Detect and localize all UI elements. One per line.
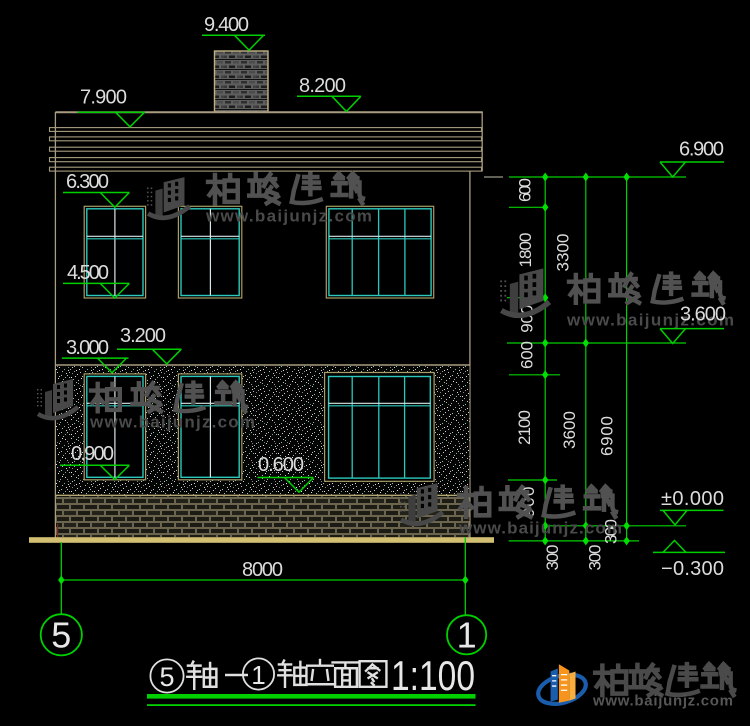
svg-text:3.200: 3.200	[120, 325, 166, 347]
svg-text:2100: 2100	[515, 410, 534, 445]
svg-text:7.900: 7.900	[80, 87, 127, 109]
svg-text:6.900: 6.900	[679, 139, 724, 161]
svg-text:0.600: 0.600	[258, 454, 304, 476]
svg-text:600: 600	[516, 178, 535, 202]
svg-text:1:100: 1:100	[391, 652, 475, 699]
svg-text:8000: 8000	[242, 559, 283, 581]
svg-text:5: 5	[159, 662, 174, 692]
svg-text:3.600: 3.600	[680, 304, 726, 326]
svg-text:3300: 3300	[554, 234, 573, 272]
svg-text:www.baijunjz.com: www.baijunjz.com	[458, 519, 622, 538]
svg-text:1: 1	[457, 615, 477, 656]
svg-text:300: 300	[586, 545, 605, 571]
svg-text:−0.300: −0.300	[661, 558, 724, 580]
svg-text:4.500: 4.500	[67, 262, 109, 284]
svg-text:3600: 3600	[560, 411, 579, 449]
svg-text:6900: 6900	[598, 416, 617, 456]
svg-text:www.baijunjz.com: www.baijunjz.com	[205, 207, 372, 226]
svg-text:300: 300	[543, 545, 562, 571]
svg-text:5: 5	[51, 615, 71, 656]
svg-text:1: 1	[251, 660, 265, 690]
svg-text:1800: 1800	[516, 233, 535, 268]
svg-text:www.baijunjz.com: www.baijunjz.com	[89, 413, 255, 432]
svg-text:www.baijunjz.com: www.baijunjz.com	[592, 693, 733, 710]
svg-text:3.000: 3.000	[66, 337, 109, 359]
svg-text:600: 600	[518, 341, 537, 369]
svg-text:8.200: 8.200	[299, 75, 346, 97]
svg-text:±0.000: ±0.000	[661, 488, 724, 510]
svg-text:9.400: 9.400	[204, 14, 249, 36]
svg-text:0.900: 0.900	[71, 443, 114, 465]
svg-text:6.300: 6.300	[66, 171, 109, 193]
